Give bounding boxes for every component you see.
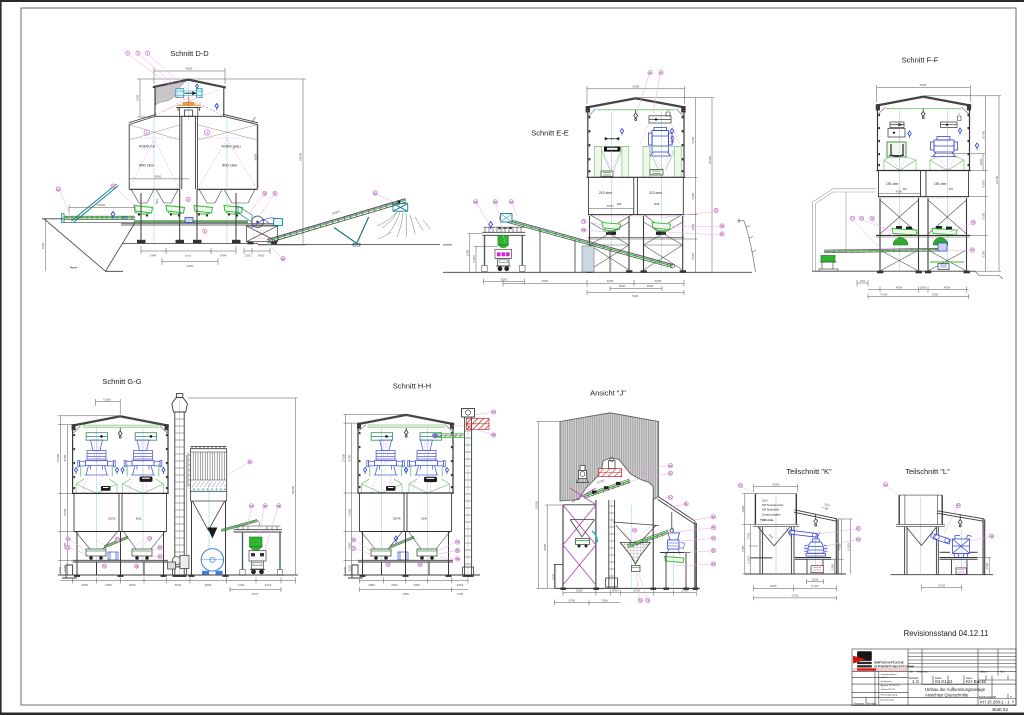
svg-text:78: 78 [972, 221, 975, 225]
svg-text:44: 44 [957, 504, 960, 508]
svg-text:60: 60 [374, 191, 377, 195]
svg-text:10: 10 [57, 187, 60, 191]
svg-text:35: 35 [264, 504, 267, 508]
svg-text:79: 79 [456, 540, 459, 544]
svg-text:3300: 3300 [136, 94, 140, 101]
svg-text:9700: 9700 [691, 136, 695, 143]
svg-text:5300: 5300 [63, 508, 67, 515]
svg-text:76: 76 [860, 216, 863, 220]
svg-text:5300: 5300 [691, 192, 695, 199]
svg-text:39: 39 [669, 464, 672, 468]
svg-text:43: 43 [857, 537, 860, 541]
svg-text:4096: 4096 [81, 583, 88, 587]
svg-text:190 cbm: 190 cbm [886, 182, 899, 186]
svg-text:Ansicht "J": Ansicht "J" [590, 389, 626, 398]
svg-text:1243: 1243 [238, 583, 245, 587]
svg-text:40: 40 [669, 471, 672, 475]
svg-text:5500: 5500 [542, 279, 549, 283]
svg-text:2790: 2790 [568, 598, 575, 602]
svg-text:5250: 5250 [981, 250, 985, 257]
svg-text:9500: 9500 [543, 543, 547, 550]
svg-text:2000: 2000 [552, 573, 556, 580]
svg-text:75: 75 [387, 563, 390, 567]
svg-text:74: 74 [871, 216, 874, 220]
svg-text:80: 80 [456, 549, 459, 553]
svg-text:10700: 10700 [981, 130, 985, 139]
svg-text:17500: 17500 [56, 453, 60, 462]
svg-text:54: 54 [492, 410, 495, 414]
svg-text:Telefon 297 58: Telefon 297 58 [881, 689, 896, 691]
svg-text:7096: 7096 [402, 592, 409, 596]
svg-text:35: 35 [494, 200, 497, 204]
svg-text:3700: 3700 [747, 532, 751, 539]
svg-text:3000: 3000 [647, 284, 654, 288]
svg-text:36: 36 [277, 504, 280, 508]
svg-text:4700: 4700 [837, 543, 841, 550]
svg-text:4.600: 4.600 [981, 180, 985, 188]
svg-text:Revisionsstand 04.12.11: Revisionsstand 04.12.11 [904, 629, 989, 638]
svg-text:5100: 5100 [981, 212, 985, 219]
svg-text:Ansichten Querschnitte: Ansichten Querschnitte [925, 693, 969, 698]
svg-text:78: 78 [639, 599, 642, 603]
svg-text:30: 30 [352, 538, 355, 542]
svg-text:6.100: 6.100 [811, 584, 819, 588]
svg-text:38: 38 [135, 564, 138, 568]
svg-text:6/5: 6/5 [949, 187, 953, 191]
svg-text:7096: 7096 [632, 294, 639, 298]
svg-text:38: 38 [419, 563, 422, 567]
svg-text:45: 45 [990, 534, 993, 538]
svg-text:41: 41 [884, 483, 887, 487]
svg-text:2500: 2500 [391, 583, 398, 587]
svg-text:41: 41 [669, 495, 672, 499]
svg-text:2000: 2000 [58, 566, 62, 573]
svg-text:Blatt 52: Blatt 52 [992, 707, 1008, 712]
svg-text:8700: 8700 [347, 454, 351, 461]
svg-text:1494: 1494 [150, 254, 157, 258]
svg-text:4.200: 4.200 [472, 255, 476, 263]
svg-text:Zusatzaufgabe: Zusatzaufgabe [762, 513, 781, 517]
svg-text:Name: Name [966, 677, 973, 680]
svg-text:5700: 5700 [938, 583, 945, 587]
svg-text:6.200: 6.200 [747, 556, 751, 564]
svg-text:15/8: 15/8 [421, 517, 427, 521]
svg-text:476A: 476A [880, 292, 887, 296]
svg-text:6.000: 6.000 [103, 397, 111, 401]
svg-text:80: 80 [159, 546, 162, 550]
svg-text:48: 48 [712, 526, 715, 530]
svg-text:2400: 2400 [985, 562, 989, 569]
svg-text:190 cbm: 190 cbm [934, 182, 947, 186]
svg-text:8/11: 8/11 [136, 517, 142, 521]
svg-text:91: 91 [249, 460, 252, 464]
svg-text:25350: 25350 [708, 155, 712, 164]
svg-text:34: 34 [510, 200, 513, 204]
svg-text:30: 30 [67, 537, 70, 541]
svg-text:KH 10 208-1 - 1: KH 10 208-1 - 1 [980, 700, 1010, 705]
svg-text:210 cbm: 210 cbm [649, 191, 662, 195]
svg-text:30: 30 [263, 192, 266, 196]
svg-text:31: 31 [352, 547, 355, 551]
svg-text:1300: 1300 [245, 254, 252, 258]
svg-text:47: 47 [633, 528, 636, 532]
svg-text:6300: 6300 [187, 264, 194, 268]
svg-text:30: 30 [721, 224, 724, 228]
svg-text:52: 52 [712, 515, 715, 519]
svg-text:5300: 5300 [465, 249, 469, 256]
svg-text:76: 76 [103, 564, 106, 568]
svg-text:6.100: 6.100 [847, 543, 851, 551]
svg-text:8700: 8700 [63, 454, 67, 461]
svg-text:7096: 7096 [932, 292, 939, 296]
svg-text:0/300 rot: 0/300 rot [139, 144, 156, 149]
svg-text:Datum: Datum [935, 677, 942, 680]
svg-text:11500: 11500 [97, 203, 105, 207]
svg-text:Schnitt E-E: Schnitt E-E [531, 129, 569, 138]
svg-text:4096: 4096 [944, 285, 951, 289]
svg-text:5250: 5250 [691, 252, 695, 259]
svg-text:3402: 3402 [457, 583, 464, 587]
svg-text:9000: 9000 [186, 67, 193, 71]
svg-text:5/11: 5/11 [654, 202, 660, 206]
svg-text:34: 34 [649, 71, 652, 75]
svg-text:Industrieanlagen: Industrieanlagen [881, 673, 898, 676]
svg-text:51: 51 [685, 502, 688, 506]
svg-text:5400: 5400 [920, 83, 927, 87]
svg-text:2xxx: 2xxx [185, 254, 192, 258]
svg-text:500 cbm: 500 cbm [139, 163, 155, 168]
svg-text:23500: 23500 [534, 500, 538, 509]
svg-text:27: 27 [660, 71, 663, 75]
svg-text:79: 79 [148, 536, 151, 540]
svg-text:37: 37 [116, 537, 119, 541]
svg-text:8000: 8000 [155, 175, 162, 179]
svg-text:0/300 grau: 0/300 grau [222, 144, 241, 149]
svg-text:42: 42 [857, 527, 860, 531]
svg-text:800: 800 [155, 199, 159, 204]
svg-text:180 cbm: 180 cbm [762, 518, 774, 522]
svg-text:41: 41 [739, 484, 742, 488]
svg-text:Schnitt F-F: Schnitt F-F [902, 56, 939, 65]
svg-text:5200: 5200 [576, 589, 583, 593]
svg-text:4096: 4096 [655, 279, 662, 283]
svg-text:500 cbm: 500 cbm [222, 163, 238, 168]
svg-text:Umbau der Aufbereitungsanlage: Umbau der Aufbereitungsanlage [925, 687, 986, 692]
svg-text:Ert.: Ert. [910, 671, 914, 674]
svg-text:55: 55 [492, 433, 495, 437]
svg-text:83: 83 [456, 557, 459, 561]
svg-text:Bl.: Bl. [1010, 697, 1013, 699]
svg-text:Schnitt H-H: Schnitt H-H [393, 382, 431, 391]
svg-text:Schnitt G-G: Schnitt G-G [102, 377, 141, 386]
svg-text:73: 73 [582, 220, 585, 224]
svg-text:Änderung: Änderung [917, 671, 928, 674]
svg-text:4096: 4096 [413, 583, 420, 587]
svg-text:24150: 24150 [995, 175, 999, 184]
svg-text:3000: 3000 [691, 223, 695, 230]
svg-text:0: 0 [1012, 700, 1014, 704]
svg-text:52/45: 52/45 [393, 517, 401, 521]
svg-text:31: 31 [67, 546, 70, 550]
svg-text:5700: 5700 [633, 589, 640, 593]
svg-text:5300: 5300 [347, 508, 351, 515]
svg-text:62: 62 [282, 257, 285, 261]
svg-text:83: 83 [159, 554, 162, 558]
svg-text:AUFBEREITUNGSTECHNIK: AUFBEREITUNGSTECHNIK [874, 664, 915, 668]
svg-text:38: 38 [112, 184, 115, 188]
svg-text:6470: 6470 [252, 592, 259, 596]
svg-text:75: 75 [971, 248, 974, 252]
svg-text:17500: 17500 [341, 453, 345, 462]
svg-text:5/8 Splittreihe: 5/8 Splittreihe [762, 508, 780, 512]
svg-text:5/8 Schotterreihe: 5/8 Schotterreihe [762, 503, 784, 507]
svg-text:6500: 6500 [607, 204, 614, 208]
svg-text:Werkstoffprüfung: Werkstoffprüfung [881, 694, 898, 697]
svg-text:3000: 3000 [619, 284, 626, 288]
svg-text:Datum: Datum [980, 671, 987, 674]
svg-text:4300: 4300 [896, 189, 903, 193]
svg-text:2500: 2500 [812, 577, 819, 581]
svg-text:am 20 a: am 20 a [881, 677, 890, 679]
svg-text:5400: 5400 [633, 84, 640, 88]
svg-text:4470: 4470 [265, 583, 272, 587]
svg-text:5506: 5506 [175, 583, 182, 587]
svg-text:4096: 4096 [129, 583, 136, 587]
svg-text:31: 31 [721, 232, 724, 236]
svg-text:7500: 7500 [41, 242, 45, 249]
svg-text:3500: 3500 [501, 277, 508, 281]
svg-text:22/X: 22/X [762, 499, 768, 503]
svg-text:7096: 7096 [601, 598, 608, 602]
svg-text:53: 53 [712, 562, 715, 566]
svg-text:2940: 2940 [979, 158, 983, 165]
svg-text:6/2: 6/2 [903, 187, 907, 191]
svg-text:3400: 3400 [347, 542, 351, 549]
svg-text:4096: 4096 [896, 285, 903, 289]
svg-text:Nof.: Nof. [1000, 671, 1005, 674]
svg-text:30000: 30000 [291, 485, 295, 494]
svg-text:2700: 2700 [681, 589, 688, 593]
svg-text:Sachbearb.: Sachbearb. [881, 680, 893, 683]
svg-text:276: 276 [860, 279, 865, 283]
svg-text:79: 79 [646, 599, 649, 603]
svg-text:Schnitt D-D: Schnitt D-D [170, 49, 209, 58]
svg-text:71: 71 [715, 209, 718, 213]
svg-text:77: 77 [851, 216, 854, 220]
svg-text:36: 36 [474, 200, 477, 204]
svg-text:Freimass: Freimass [854, 703, 865, 706]
svg-text:5700: 5700 [792, 594, 799, 598]
svg-text:Abmaße: Abmaße [867, 703, 877, 706]
svg-text:31: 31 [274, 192, 277, 196]
svg-text:Maßstab: Maßstab [909, 677, 919, 680]
svg-text:Teilschnitt "L": Teilschnitt "L" [905, 467, 950, 476]
svg-text:5250: 5250 [347, 564, 351, 571]
svg-text:50: 50 [712, 549, 715, 553]
svg-text:210 cbm: 210 cbm [599, 191, 612, 195]
svg-text:6500: 6500 [773, 482, 780, 486]
svg-text:Apparat 297 58 141: Apparat 297 58 141 [881, 684, 901, 687]
svg-text:Teilschnitt "K": Teilschnitt "K" [786, 467, 832, 476]
svg-text:34: 34 [250, 504, 253, 508]
svg-text:4096: 4096 [607, 279, 614, 283]
svg-text:3400: 3400 [612, 589, 619, 593]
svg-text:4096: 4096 [368, 583, 375, 587]
svg-text:2500: 2500 [920, 285, 927, 289]
svg-text:49: 49 [712, 536, 715, 540]
svg-text:1494: 1494 [220, 254, 227, 258]
svg-text:2/5: 2/5 [617, 202, 622, 206]
svg-text:7750: 7750 [741, 545, 745, 552]
svg-text:83: 83 [582, 228, 585, 232]
svg-text:22/32: 22/32 [108, 517, 116, 521]
svg-text:1700: 1700 [457, 592, 464, 596]
svg-text:3800: 3800 [205, 583, 212, 587]
svg-text:3600: 3600 [258, 254, 265, 258]
svg-text:24500: 24500 [299, 152, 303, 161]
svg-text:2500: 2500 [105, 583, 112, 587]
svg-text:2400: 2400 [831, 563, 835, 570]
svg-text:2000: 2000 [343, 566, 347, 573]
svg-text:4096: 4096 [770, 584, 777, 588]
svg-text:Bemerkungen: Bemerkungen [881, 699, 895, 702]
svg-text:6600: 6600 [741, 505, 745, 512]
